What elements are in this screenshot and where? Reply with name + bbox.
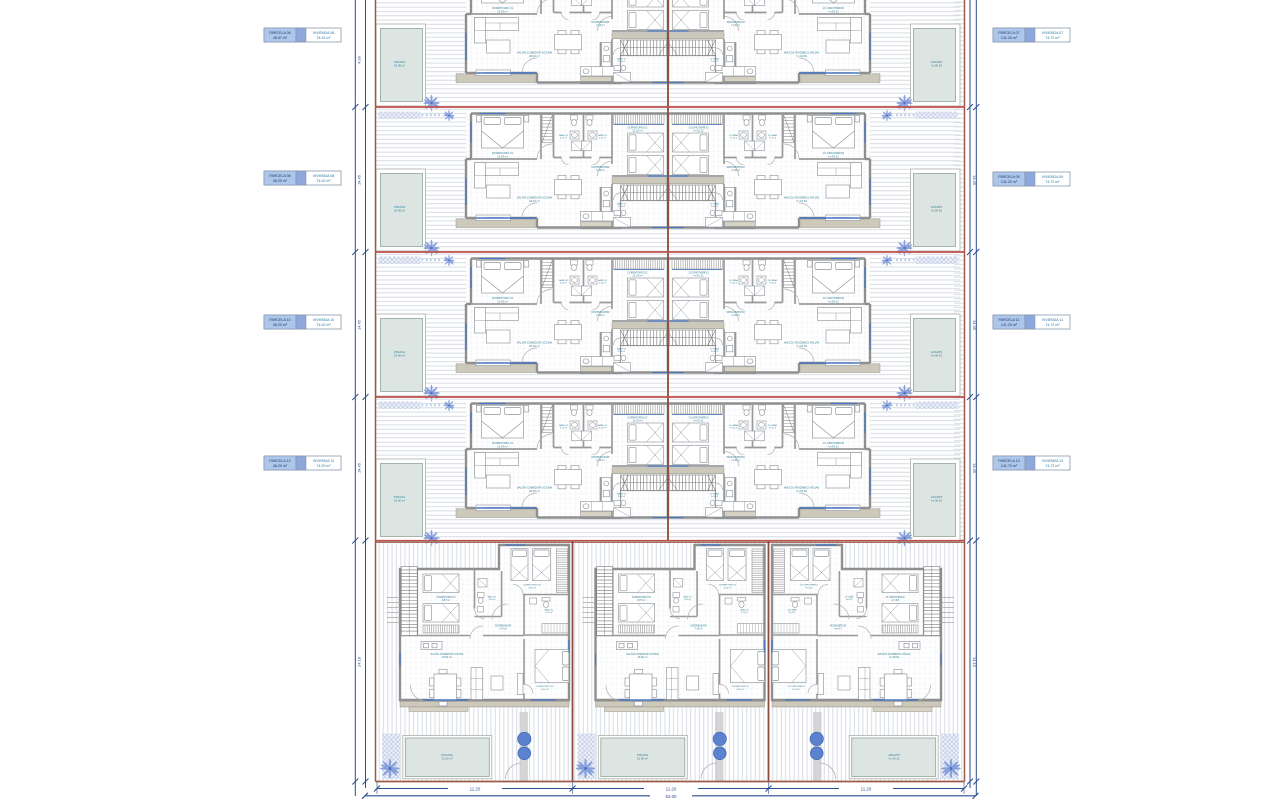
svg-text:74.72 m²: 74.72 m² bbox=[1045, 323, 1060, 327]
svg-text:141.70 m²: 141.70 m² bbox=[1001, 464, 1018, 468]
svg-text:48.20 m²: 48.20 m² bbox=[273, 464, 288, 468]
svg-text:63.00: 63.00 bbox=[666, 794, 678, 799]
svg-text:VIVIENDA 07: VIVIENDA 07 bbox=[1042, 31, 1064, 35]
svg-text:VIVIENDA 11: VIVIENDA 11 bbox=[1042, 318, 1063, 322]
svg-text:14.10: 14.10 bbox=[972, 657, 977, 668]
svg-text:14.45: 14.45 bbox=[357, 319, 362, 330]
svg-text:PARCELA 11: PARCELA 11 bbox=[998, 318, 1019, 322]
svg-text:74.72 m²: 74.72 m² bbox=[1045, 180, 1060, 184]
svg-text:PARCELA 06: PARCELA 06 bbox=[269, 31, 290, 35]
svg-text:14.45: 14.45 bbox=[357, 462, 362, 473]
svg-text:VIVIENDA 12: VIVIENDA 12 bbox=[313, 459, 335, 463]
svg-text:141.20 m²: 141.20 m² bbox=[1001, 180, 1018, 184]
svg-text:74.02 m²: 74.02 m² bbox=[316, 464, 331, 468]
svg-text:PARCELA 09: PARCELA 09 bbox=[998, 175, 1019, 179]
svg-text:74.02 m²: 74.02 m² bbox=[316, 179, 331, 183]
svg-text:PARCELA 13: PARCELA 13 bbox=[998, 459, 1019, 463]
svg-text:VIVIENDA 13: VIVIENDA 13 bbox=[1042, 459, 1064, 463]
svg-text:VIVIENDA 08: VIVIENDA 08 bbox=[313, 174, 335, 178]
svg-text:VIVIENDA 09: VIVIENDA 09 bbox=[1042, 175, 1064, 179]
svg-text:PARCELA 10: PARCELA 10 bbox=[269, 318, 290, 322]
svg-text:VIVIENDA 06: VIVIENDA 06 bbox=[313, 31, 335, 35]
svg-text:48.20 m²: 48.20 m² bbox=[273, 179, 288, 183]
svg-text:PARCELA 12: PARCELA 12 bbox=[269, 459, 290, 463]
svg-text:14.45: 14.45 bbox=[972, 463, 977, 474]
svg-text:PARCELA 08: PARCELA 08 bbox=[269, 174, 290, 178]
svg-text:PARCELA 07: PARCELA 07 bbox=[998, 31, 1019, 35]
svg-text:24.18: 24.18 bbox=[357, 656, 362, 667]
svg-text:141.30 m²: 141.30 m² bbox=[1001, 36, 1018, 40]
svg-text:74.72 m²: 74.72 m² bbox=[1045, 36, 1060, 40]
svg-text:74.02 m²: 74.02 m² bbox=[316, 36, 331, 40]
svg-text:74.72 m²: 74.72 m² bbox=[1045, 464, 1060, 468]
svg-text:48.20 m²: 48.20 m² bbox=[273, 323, 288, 327]
svg-text:14.45: 14.45 bbox=[972, 175, 977, 186]
svg-text:14.45: 14.45 bbox=[357, 174, 362, 185]
svg-text:VIVIENDA 10: VIVIENDA 10 bbox=[313, 318, 335, 322]
svg-text:14.45: 14.45 bbox=[972, 320, 977, 331]
svg-text:11.20: 11.20 bbox=[861, 786, 872, 791]
svg-text:4.99: 4.99 bbox=[357, 55, 362, 64]
svg-text:74.02 m²: 74.02 m² bbox=[316, 323, 331, 327]
svg-text:141.20 m²: 141.20 m² bbox=[1001, 323, 1018, 327]
svg-text:11.20: 11.20 bbox=[666, 786, 677, 791]
svg-text:11.20: 11.20 bbox=[470, 786, 481, 791]
svg-text:48.57 m²: 48.57 m² bbox=[273, 36, 288, 40]
